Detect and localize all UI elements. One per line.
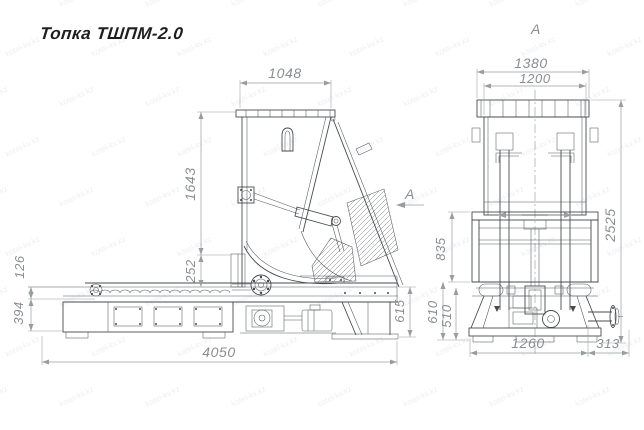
dim-frame-height-inner: 510: [439, 304, 454, 328]
arch-door-icon: [282, 128, 293, 151]
drawing-canvas: kotel-kv.kzkotel-kv.kzkotel-kv.kzkotel-k…: [0, 0, 644, 430]
front-view: A 1380 1200 2525 835 610: [425, 21, 629, 357]
dim-total-length: 4050: [202, 344, 236, 360]
hatched-grate: [312, 238, 356, 282]
dim-mid-section-height: 835: [433, 237, 448, 261]
drive-shaft-front: [588, 306, 623, 328]
dim-base-width: 1260: [511, 335, 545, 351]
dim-overall-height: 2525: [602, 208, 618, 243]
dim-shaft-length: 313: [596, 336, 620, 351]
dim-conveyor-step: 126: [12, 255, 27, 279]
frame-legs-side: [332, 302, 398, 339]
technical-drawing: 1048 1643 252 126 394 4050: [0, 0, 644, 430]
side-view: 1048 1643 252 126 394 4050: [11, 65, 424, 365]
front-dimensions: A 1380 1200 2525 835 610: [425, 21, 629, 357]
drive-bearing: [251, 275, 271, 295]
dim-hopper-height: 1643: [182, 167, 198, 201]
dim-chute-height: 252: [183, 259, 198, 284]
screw-flights: [90, 290, 230, 293]
dim-frame-height: 615: [392, 299, 407, 323]
hatched-shield: [347, 189, 398, 266]
dim-hopper-width-front: 1200: [519, 71, 550, 86]
dim-hopper-width: 1048: [268, 65, 302, 81]
section-arrow-label: A: [404, 186, 415, 202]
drawing-title: Топка ТШПМ-2.0: [39, 24, 184, 44]
dim-overall-width: 1380: [514, 55, 548, 71]
dim-frame-height-outer: 610: [425, 300, 440, 324]
section-arrow-icon: A: [396, 186, 424, 208]
motor-front: [543, 311, 560, 328]
dim-ash-box-height: 394: [11, 301, 26, 325]
ash-box: [63, 302, 233, 338]
front-view-label: A: [530, 21, 541, 37]
drive-unit-side: [240, 305, 336, 333]
